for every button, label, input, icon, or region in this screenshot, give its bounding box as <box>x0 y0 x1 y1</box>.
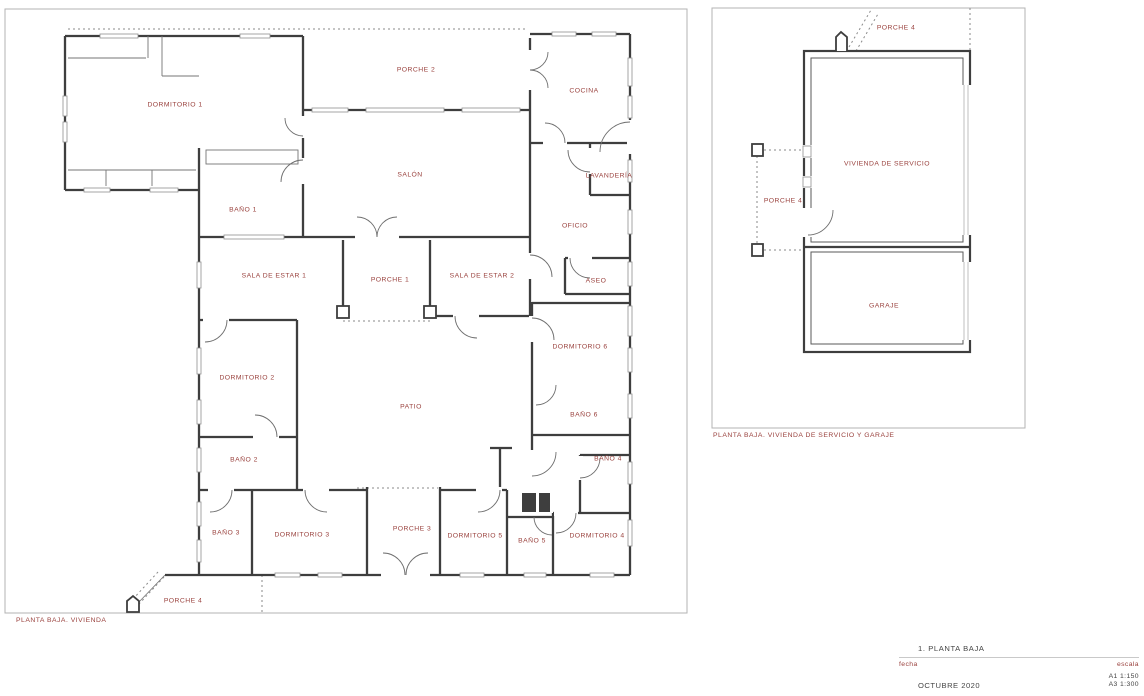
room-label: BAÑO 1 <box>229 207 257 214</box>
title-block-rule <box>899 657 1139 658</box>
scale-a1: A1 1:150 <box>1109 673 1139 680</box>
room-label: DORMITORIO 5 <box>447 533 502 540</box>
room-label: SALÓN <box>397 172 422 179</box>
room-label: BAÑO 6 <box>570 412 598 419</box>
room-label: DORMITORIO 6 <box>552 344 607 351</box>
room-label: DORMITORIO 3 <box>274 532 329 539</box>
room-label: BAÑO 5 <box>518 538 546 545</box>
room-label: PORCHE 4 <box>764 198 802 205</box>
room-labels-layer: DORMITORIO 1PORCHE 2COCINASALÓNLAVANDERÍ… <box>0 0 1144 696</box>
room-label: BAÑO 2 <box>230 457 258 464</box>
scale-values: A1 1:150 A3 1:300 <box>1109 673 1139 690</box>
room-label: PORCHE 4 <box>877 25 915 32</box>
room-label: LAVANDERÍA <box>586 173 633 180</box>
room-label: BAÑO 3 <box>212 530 240 537</box>
room-label: DORMITORIO 4 <box>569 533 624 540</box>
caption-plan-servicio: PLANTA BAJA. VIVIENDA DE SERVICIO Y GARA… <box>713 432 894 439</box>
room-label: PORCHE 1 <box>371 277 409 284</box>
caption-plan-vivienda: PLANTA BAJA. VIVIENDA <box>16 617 106 624</box>
room-label: OFICIO <box>562 223 588 230</box>
room-label: ASEO <box>586 278 607 285</box>
room-label: SALA DE ESTAR 2 <box>450 273 515 280</box>
room-label: GARAJE <box>869 303 899 310</box>
scale-label: escala <box>1117 661 1139 668</box>
room-label: PORCHE 3 <box>393 526 431 533</box>
room-label: VIVIENDA DE SERVICIO <box>844 161 930 168</box>
room-label: COCINA <box>569 88 598 95</box>
room-label: PORCHE 4 <box>164 598 202 605</box>
room-label: PORCHE 2 <box>397 67 435 74</box>
title-block: 1. PLANTA BAJA fecha escala OCTUBRE 2020… <box>899 644 1139 690</box>
room-label: PATIO <box>400 404 422 411</box>
sheet-title: 1. PLANTA BAJA <box>918 644 1139 653</box>
room-label: DORMITORIO 2 <box>219 375 274 382</box>
room-label: BAÑO 4 <box>594 456 622 463</box>
room-label: SALA DE ESTAR 1 <box>242 273 307 280</box>
room-label: DORMITORIO 1 <box>147 102 202 109</box>
drawing-sheet: DORMITORIO 1PORCHE 2COCINASALÓNLAVANDERÍ… <box>0 0 1144 696</box>
date-value: OCTUBRE 2020 <box>918 681 980 690</box>
date-label: fecha <box>899 661 918 668</box>
scale-a3: A3 1:300 <box>1109 681 1139 688</box>
